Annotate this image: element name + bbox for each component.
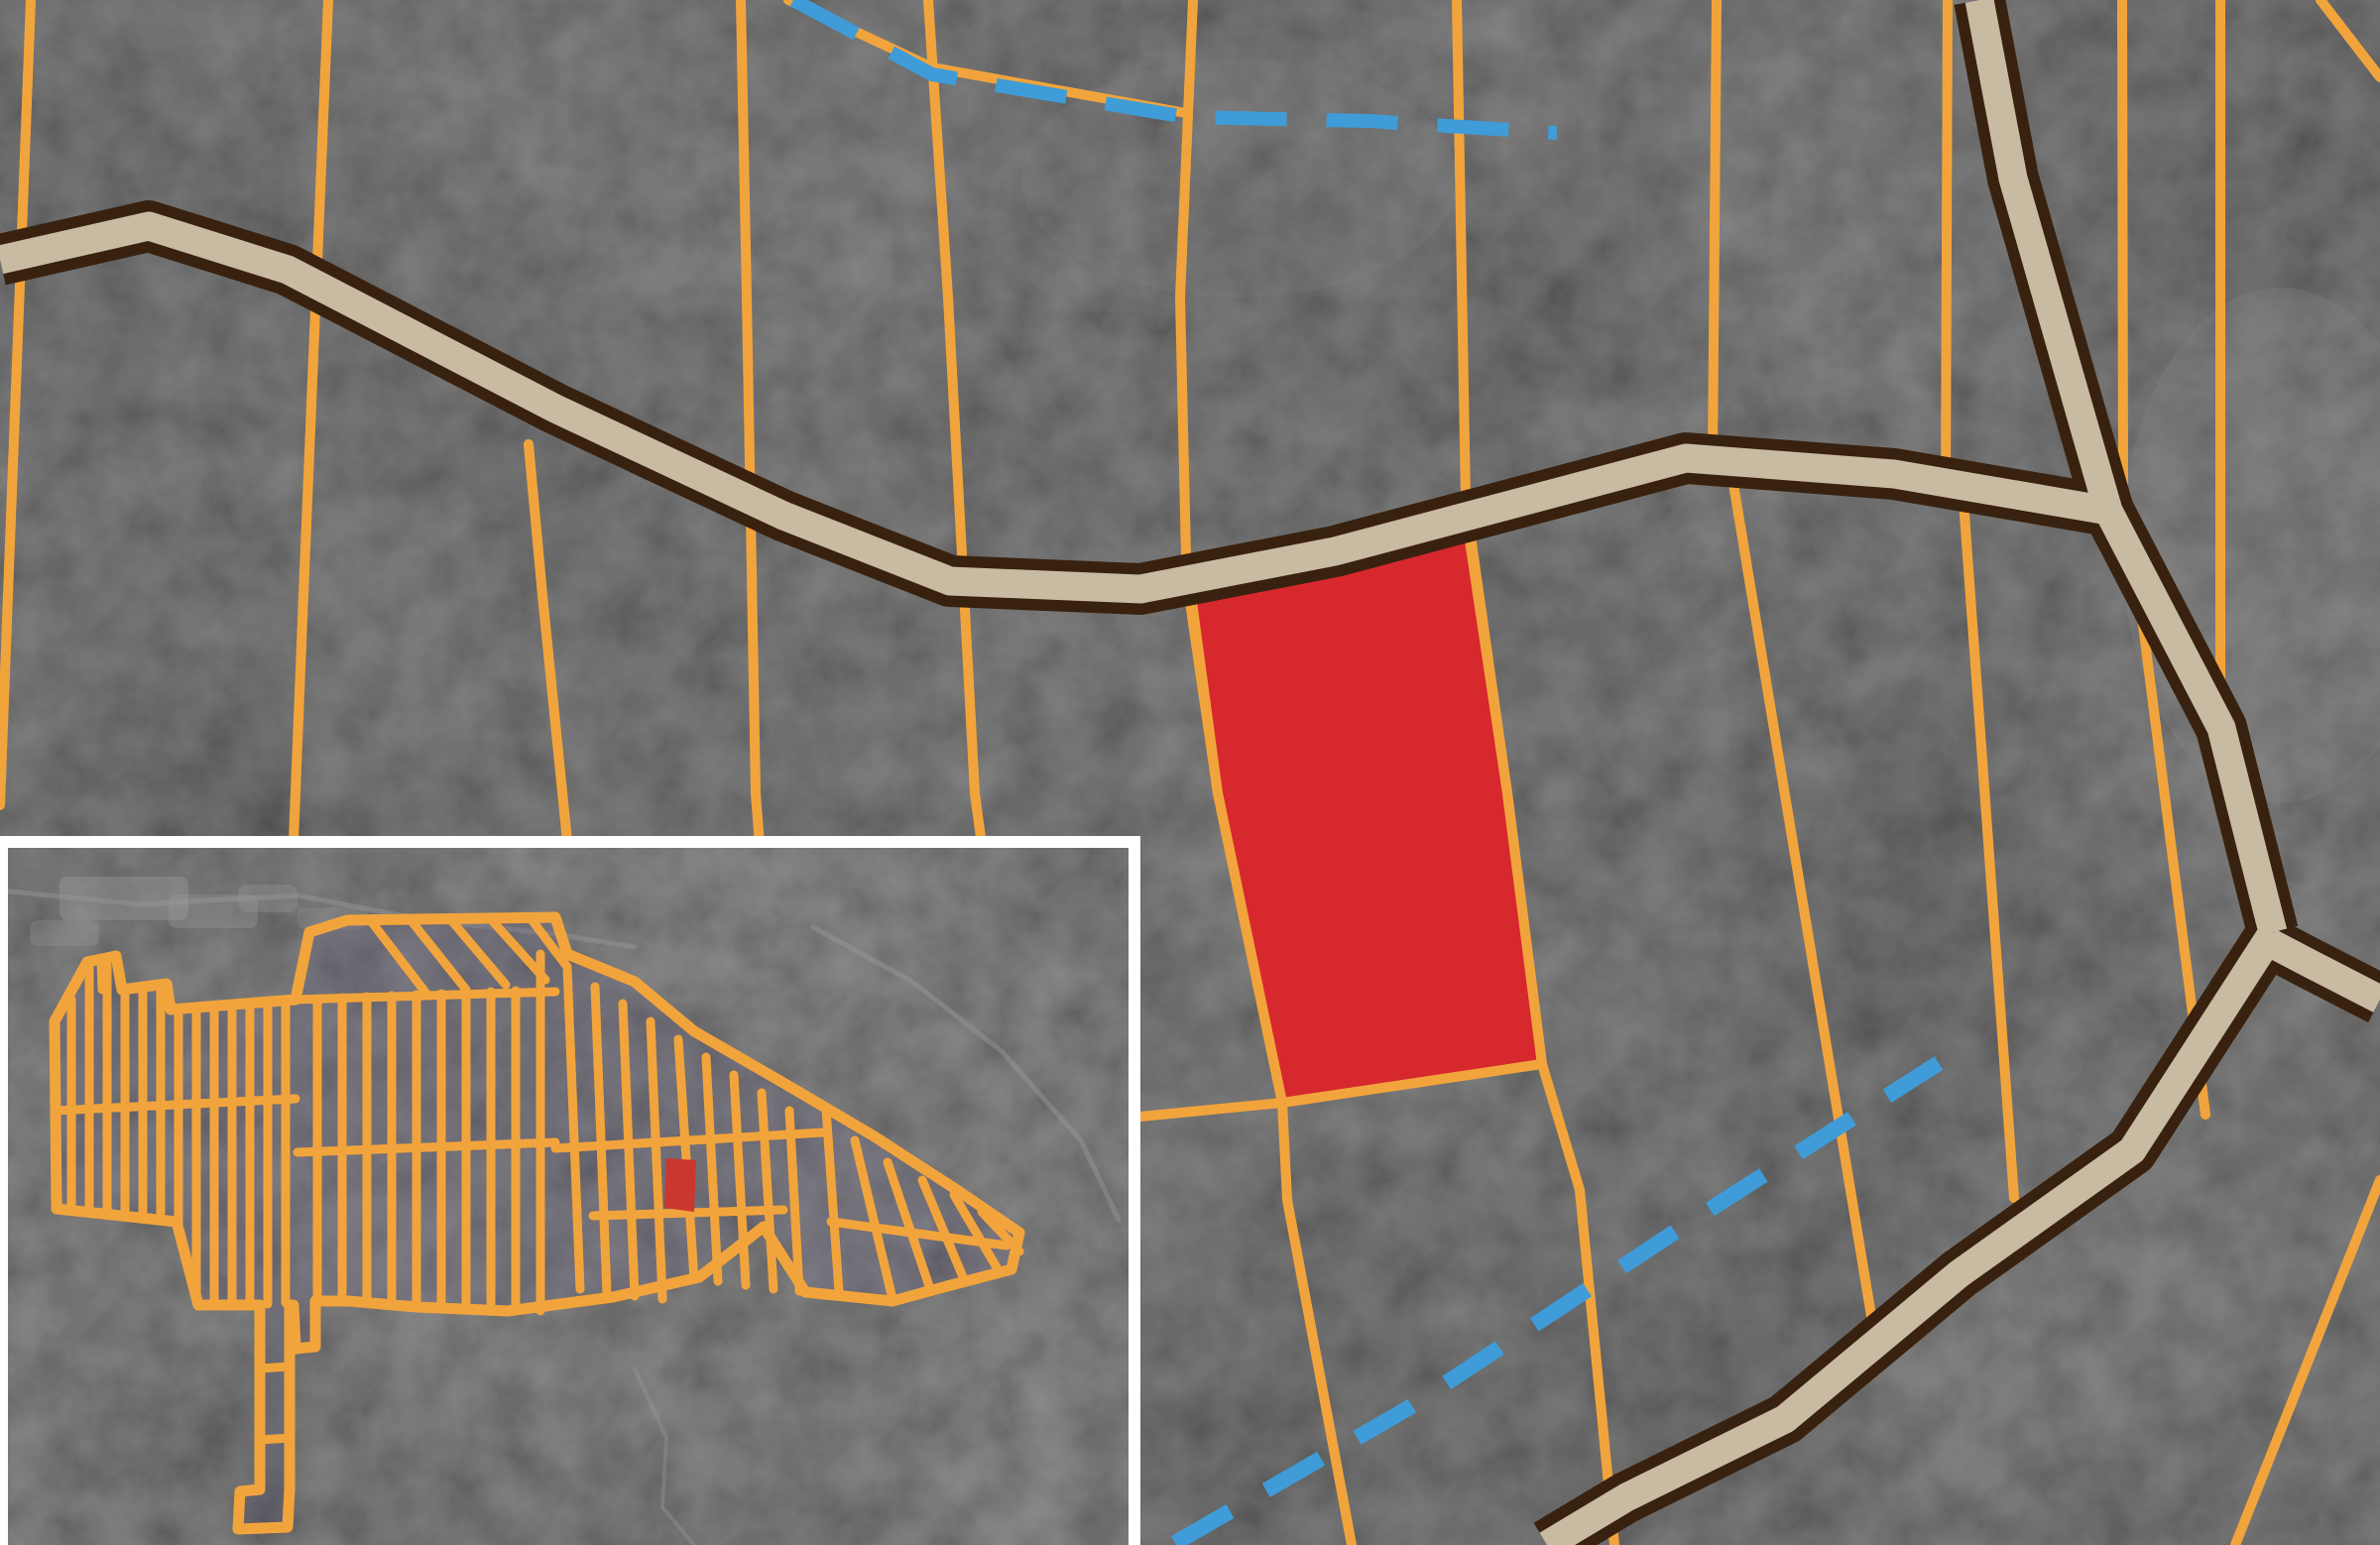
inset-border-top (0, 836, 1140, 848)
map-canvas[interactable] (0, 0, 2380, 1545)
inset-border-right (1129, 836, 1140, 1545)
inset-border-left (0, 836, 8, 1545)
inset-content (0, 848, 1129, 1545)
inset-locator-map[interactable] (0, 836, 1140, 1545)
parcel-map-screenshot (0, 0, 2380, 1545)
inset-terrain-clearing (30, 920, 99, 946)
inset-highlighted-parcel-marker (664, 1158, 696, 1212)
